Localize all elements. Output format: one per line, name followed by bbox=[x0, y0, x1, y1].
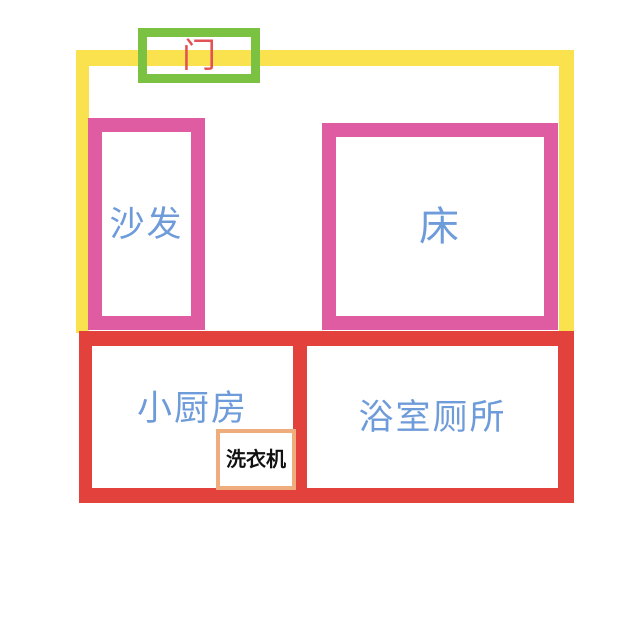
washer-label: 洗衣机 bbox=[226, 450, 286, 470]
bed-box: 床 bbox=[322, 123, 558, 330]
sofa-label: 沙发 bbox=[109, 207, 183, 242]
door-box: 门 bbox=[138, 28, 260, 83]
bed-label: 床 bbox=[419, 207, 461, 247]
door-label: 门 bbox=[182, 39, 216, 73]
kitchen-label: 小厨房 bbox=[137, 391, 248, 426]
washer-box: 洗衣机 bbox=[216, 429, 296, 490]
floorplan-canvas: 门 沙发 床 小厨房 浴室厕所 洗衣机 bbox=[0, 0, 640, 640]
lower-section-wall: 小厨房 浴室厕所 bbox=[79, 331, 574, 503]
bathroom-box: 浴室厕所 bbox=[307, 346, 558, 488]
bathroom-label: 浴室厕所 bbox=[358, 400, 506, 435]
sofa-box: 沙发 bbox=[88, 118, 205, 330]
